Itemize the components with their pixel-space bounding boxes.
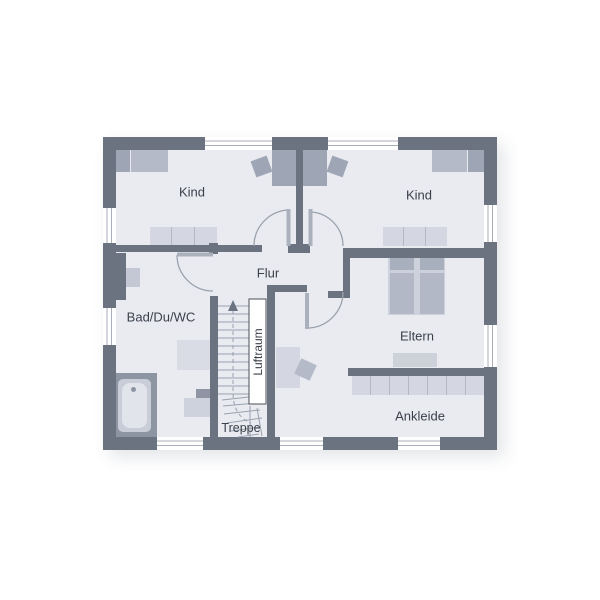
door-leaf-bad <box>177 253 213 257</box>
room-label-kind-left: Kind <box>179 186 205 199</box>
door-arc-kind-left <box>254 210 290 246</box>
stairs-and-doors-overlay <box>0 0 600 600</box>
door-leaf-kind-right <box>309 209 313 246</box>
door-arc-bad <box>177 255 213 291</box>
door-arc-kind-right <box>309 212 343 246</box>
door-leaf-kind-left <box>287 209 291 246</box>
room-label-luftraum: Luftraum <box>252 328 264 375</box>
floor-plan: Kind Kind Flur Bad/Du/WC Eltern Ankleide… <box>0 0 600 600</box>
door-leaf-eltern <box>305 293 309 329</box>
room-label-bad: Bad/Du/WC <box>127 311 196 324</box>
room-label-eltern: Eltern <box>400 330 434 343</box>
room-label-flur: Flur <box>257 267 279 280</box>
room-label-treppe: Treppe <box>221 422 260 435</box>
door-arc-eltern <box>307 292 343 328</box>
room-label-kind-right: Kind <box>406 189 432 202</box>
room-label-ankleide: Ankleide <box>395 410 445 423</box>
